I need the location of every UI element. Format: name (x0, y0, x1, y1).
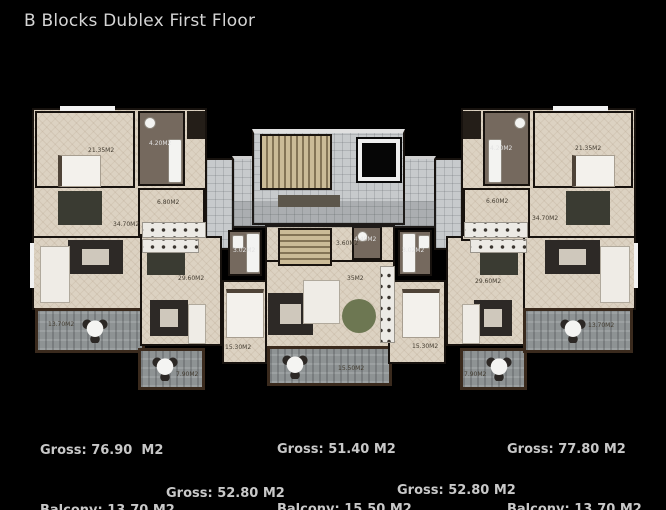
left-dining-table (58, 191, 102, 225)
gross-line: Gross: 76.90 M2 (40, 441, 175, 461)
right-window-side (634, 243, 638, 288)
room-area-label: 4.20M2 (490, 145, 512, 152)
room-area-label: 34.70M2 (113, 221, 139, 228)
left-mid-bed (226, 289, 264, 338)
center-sofa (303, 280, 340, 324)
right-balcony-table (560, 317, 586, 343)
right-mid-bed (402, 289, 440, 338)
unit-summary-center-duplex: Gross: 51.40 M2 Balcony: 15.50 M2 (277, 400, 412, 510)
floor-plan: 21.35M2 4.20M2 6.80M2 34.70M2 13.70M2 29… (30, 103, 638, 395)
center-unit-stairs (278, 228, 332, 266)
left-mid-balcony-table (152, 355, 178, 381)
right-bed (572, 155, 615, 187)
unit-summary-left-duplex: Gross: 76.90 M2 Balcony: 13.70 M2 (40, 401, 175, 510)
gross-line: Gross: 77.80 M2 (507, 440, 642, 460)
room-area-label: 34.70M2 (532, 215, 558, 222)
room-area-label: 21.35M2 (575, 145, 601, 152)
left-bed (58, 155, 101, 187)
left-mid-sofa (188, 304, 206, 344)
room-area-label: 15.50M2 (338, 365, 364, 372)
stair-landing (278, 195, 340, 207)
room-area-label: 21.35M2 (88, 147, 114, 154)
left-mid-living-rug (150, 300, 188, 336)
left-mid-dining-table (147, 253, 185, 275)
page-background: B Blocks Dublex First Floor (0, 0, 666, 510)
left-sink (144, 117, 156, 129)
room-area-label: 6.60M2 (486, 198, 508, 205)
room-area-label: 3.02M2 (233, 247, 255, 254)
right-kitchen-counter (464, 222, 528, 238)
left-balcony-table (82, 317, 108, 343)
balcony-line: Balcony: 13.70 M2 (507, 500, 642, 510)
left-window-top (60, 106, 115, 111)
center-balcony-table (282, 353, 308, 379)
room-area-label: 13.70M2 (588, 322, 614, 329)
room-area-label: 35M2 (347, 275, 364, 282)
room-area-label: 6.80M2 (157, 199, 179, 206)
page-title: B Blocks Dublex First Floor (24, 11, 255, 31)
unit-summary-right-duplex: Gross: 77.80 M2 Balcony: 13.70 M2 (507, 400, 642, 510)
room-area-label: 29.60M2 (178, 275, 204, 282)
room-area-label: 7.90M2 (464, 371, 486, 378)
room-area-label: 15.30M2 (225, 344, 251, 351)
right-dining-table (566, 191, 610, 225)
center-kitchen-counter (380, 266, 395, 343)
room-area-label: 29.60M2 (475, 278, 501, 285)
left-kitchen-counter (142, 222, 206, 238)
right-mid-kitchen-counter (470, 239, 527, 253)
center-dining-table (342, 299, 376, 333)
room-area-label: 3.02M2 (402, 247, 424, 254)
left-window-side (30, 243, 34, 288)
room-area-label: 15.30M2 (412, 343, 438, 350)
room-area-label: 4.20M2 (149, 140, 171, 147)
right-sink (514, 117, 526, 129)
right-living-rug (545, 240, 600, 274)
room-area-label: 7.90M2 (176, 371, 198, 378)
gross-line: Gross: 51.40 M2 (277, 440, 412, 460)
right-sofa (600, 246, 630, 303)
balcony-line: Balcony: 13.70 M2 (40, 501, 175, 510)
main-staircase (260, 134, 332, 190)
right-window-top (553, 106, 608, 111)
right-shaft (463, 111, 481, 139)
right-mid-balcony-table (486, 355, 512, 381)
left-mid-kitchen-counter (142, 239, 199, 253)
room-area-label: 4.40M2 (354, 236, 376, 243)
right-mid-dining-table (480, 253, 518, 275)
right-mid-sofa (462, 304, 480, 344)
balcony-line: Balcony: 15.50 M2 (277, 500, 412, 510)
left-living-rug (68, 240, 123, 274)
left-sofa (40, 246, 70, 303)
elevator-shaft (358, 139, 400, 181)
room-area-label: 13.70M2 (48, 321, 74, 328)
left-shaft (187, 111, 205, 139)
